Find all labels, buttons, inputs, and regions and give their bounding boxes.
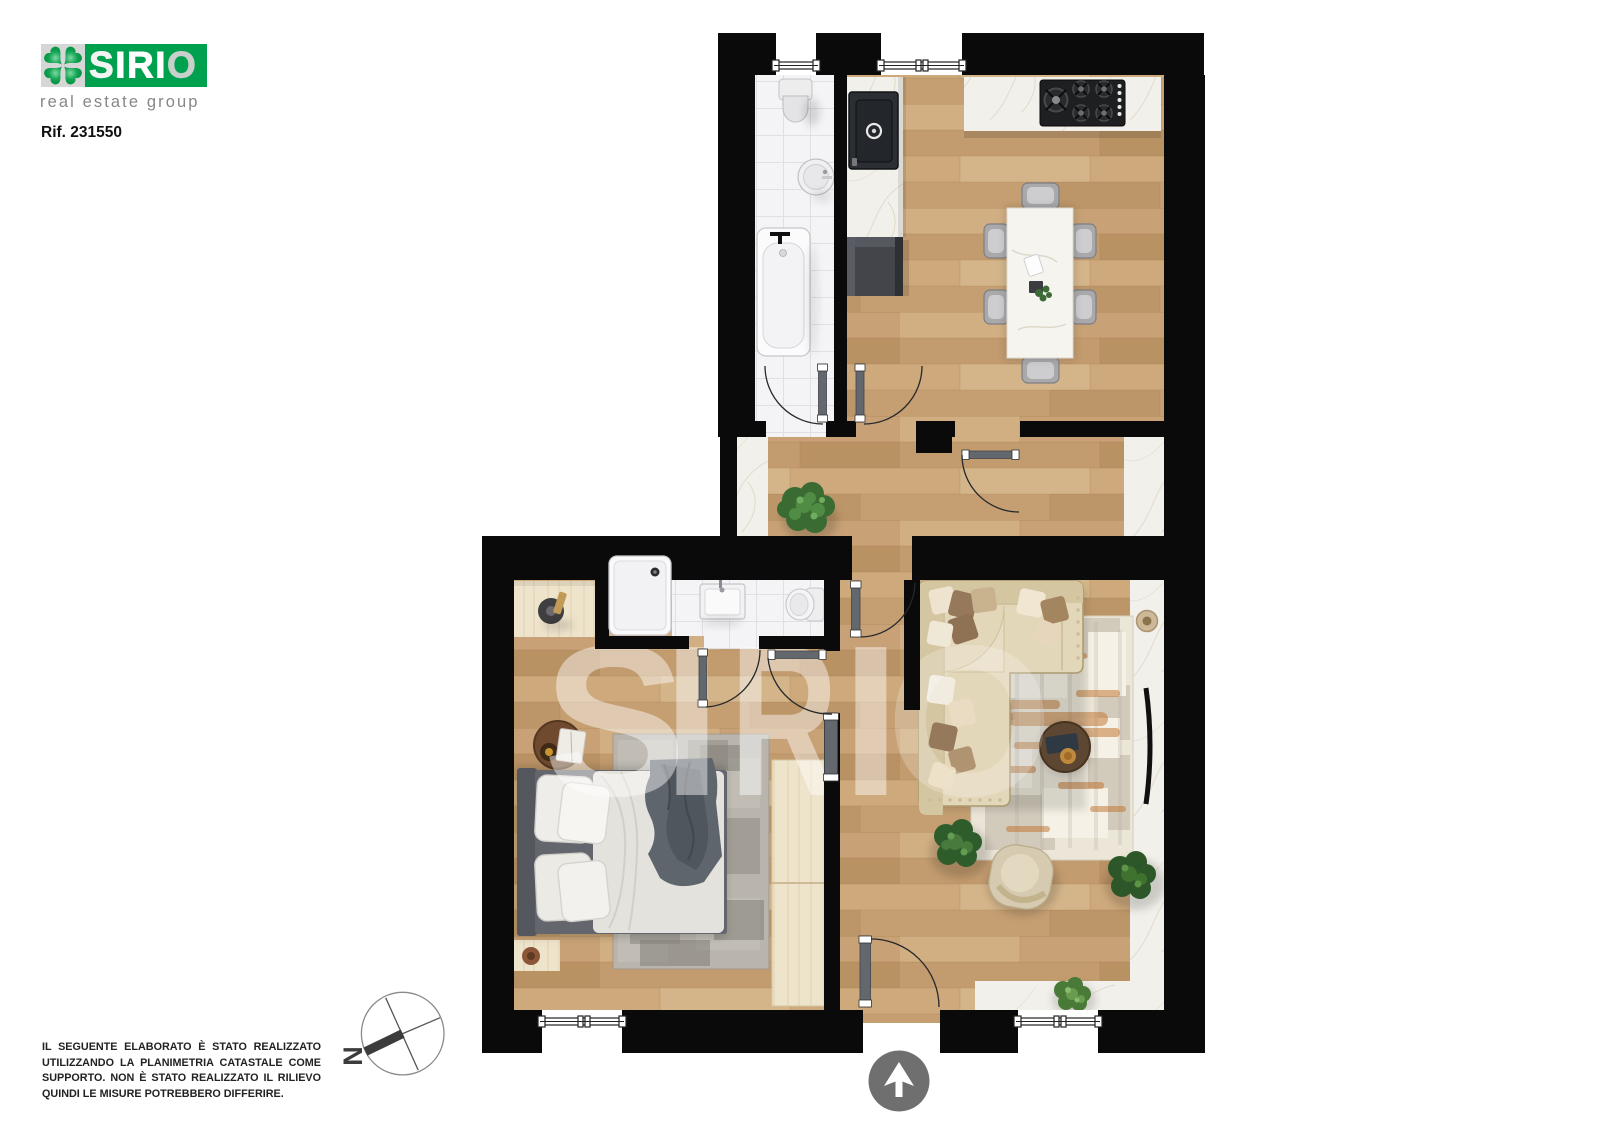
svg-text:N: N xyxy=(338,1046,368,1066)
svg-text:SIRIO: SIRIO xyxy=(89,45,197,86)
svg-text:real estate group: real estate group xyxy=(40,93,200,111)
svg-text:Rif. 231550: Rif. 231550 xyxy=(41,124,122,141)
